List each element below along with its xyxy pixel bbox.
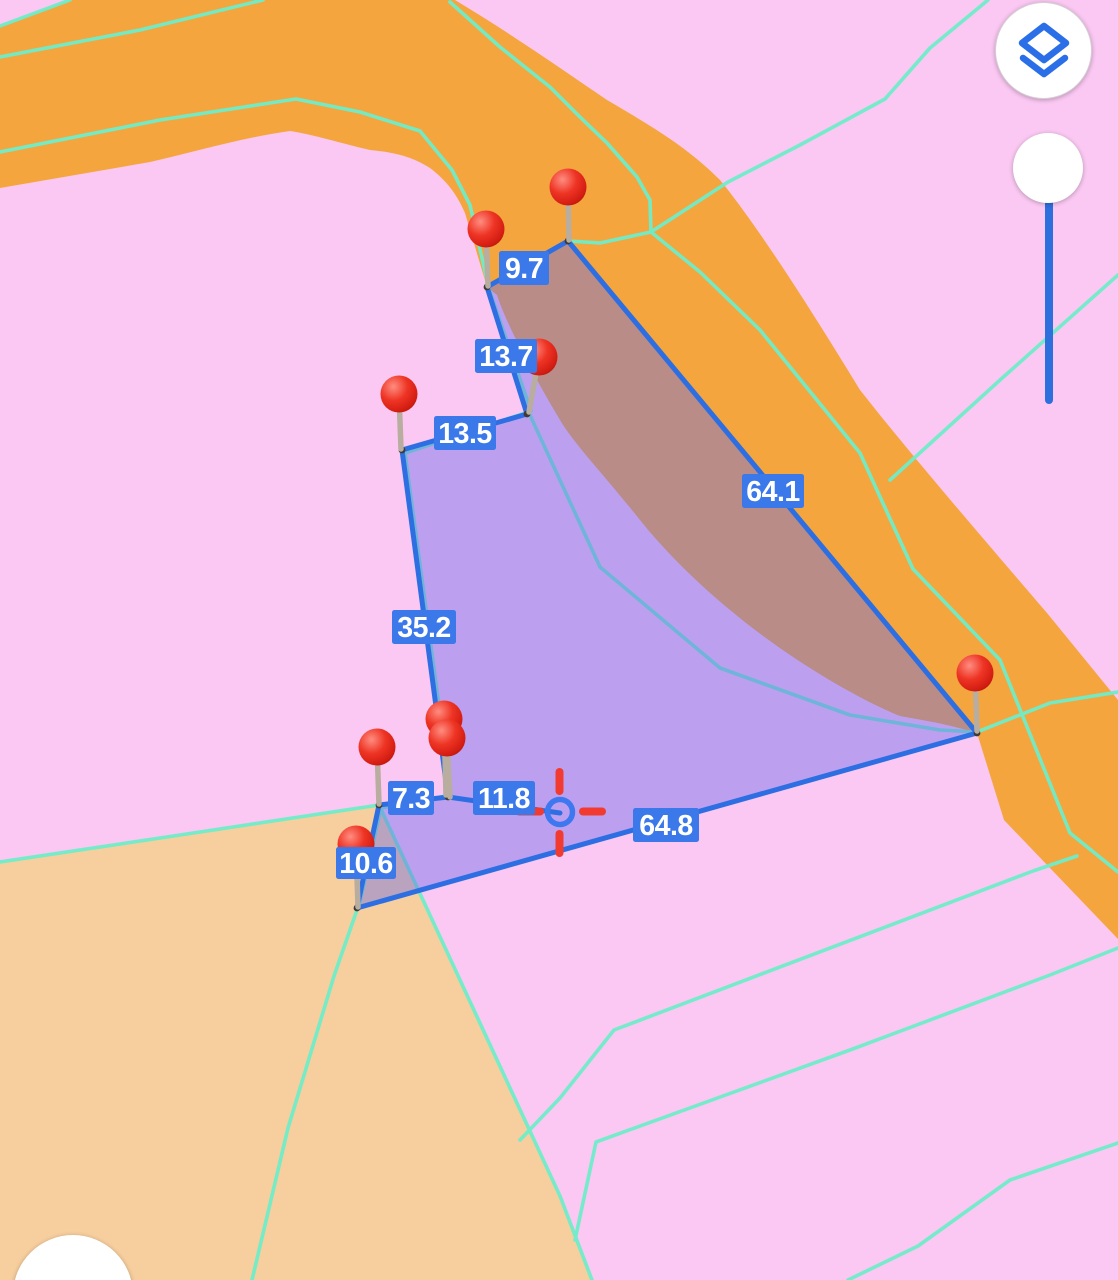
svg-text:64.1: 64.1 (746, 476, 800, 508)
zoom-slider-track[interactable] (1045, 198, 1053, 404)
layers-icon (1013, 20, 1075, 82)
svg-text:13.7: 13.7 (479, 341, 532, 373)
svg-text:10.6: 10.6 (339, 848, 392, 880)
svg-text:11.8: 11.8 (478, 783, 530, 815)
layers-button[interactable] (995, 2, 1092, 99)
distance-label: 13.7 (475, 339, 537, 373)
svg-text:64.8: 64.8 (639, 810, 692, 842)
distance-label: 10.6 (336, 847, 396, 880)
distance-label: 9.7 (499, 251, 549, 285)
svg-text:35.2: 35.2 (397, 612, 450, 644)
map-screen: 9.7 13.7 13.5 64.1 35.2 7.3 (0, 0, 1118, 1280)
svg-text:9.7: 9.7 (505, 253, 543, 285)
distance-label: 7.3 (388, 781, 434, 815)
zoom-slider-handle[interactable] (1013, 133, 1083, 203)
distance-label: 13.5 (434, 416, 496, 450)
svg-text:13.5: 13.5 (438, 418, 492, 450)
distance-label: 64.1 (742, 474, 804, 508)
distance-label: 11.8 (473, 781, 535, 815)
distance-label: 64.8 (633, 808, 699, 842)
chevron-up-icon (38, 1260, 108, 1280)
svg-text:7.3: 7.3 (392, 783, 430, 815)
map-canvas[interactable]: 9.7 13.7 13.5 64.1 35.2 7.3 (0, 0, 1118, 1280)
distance-label: 35.2 (392, 610, 456, 644)
